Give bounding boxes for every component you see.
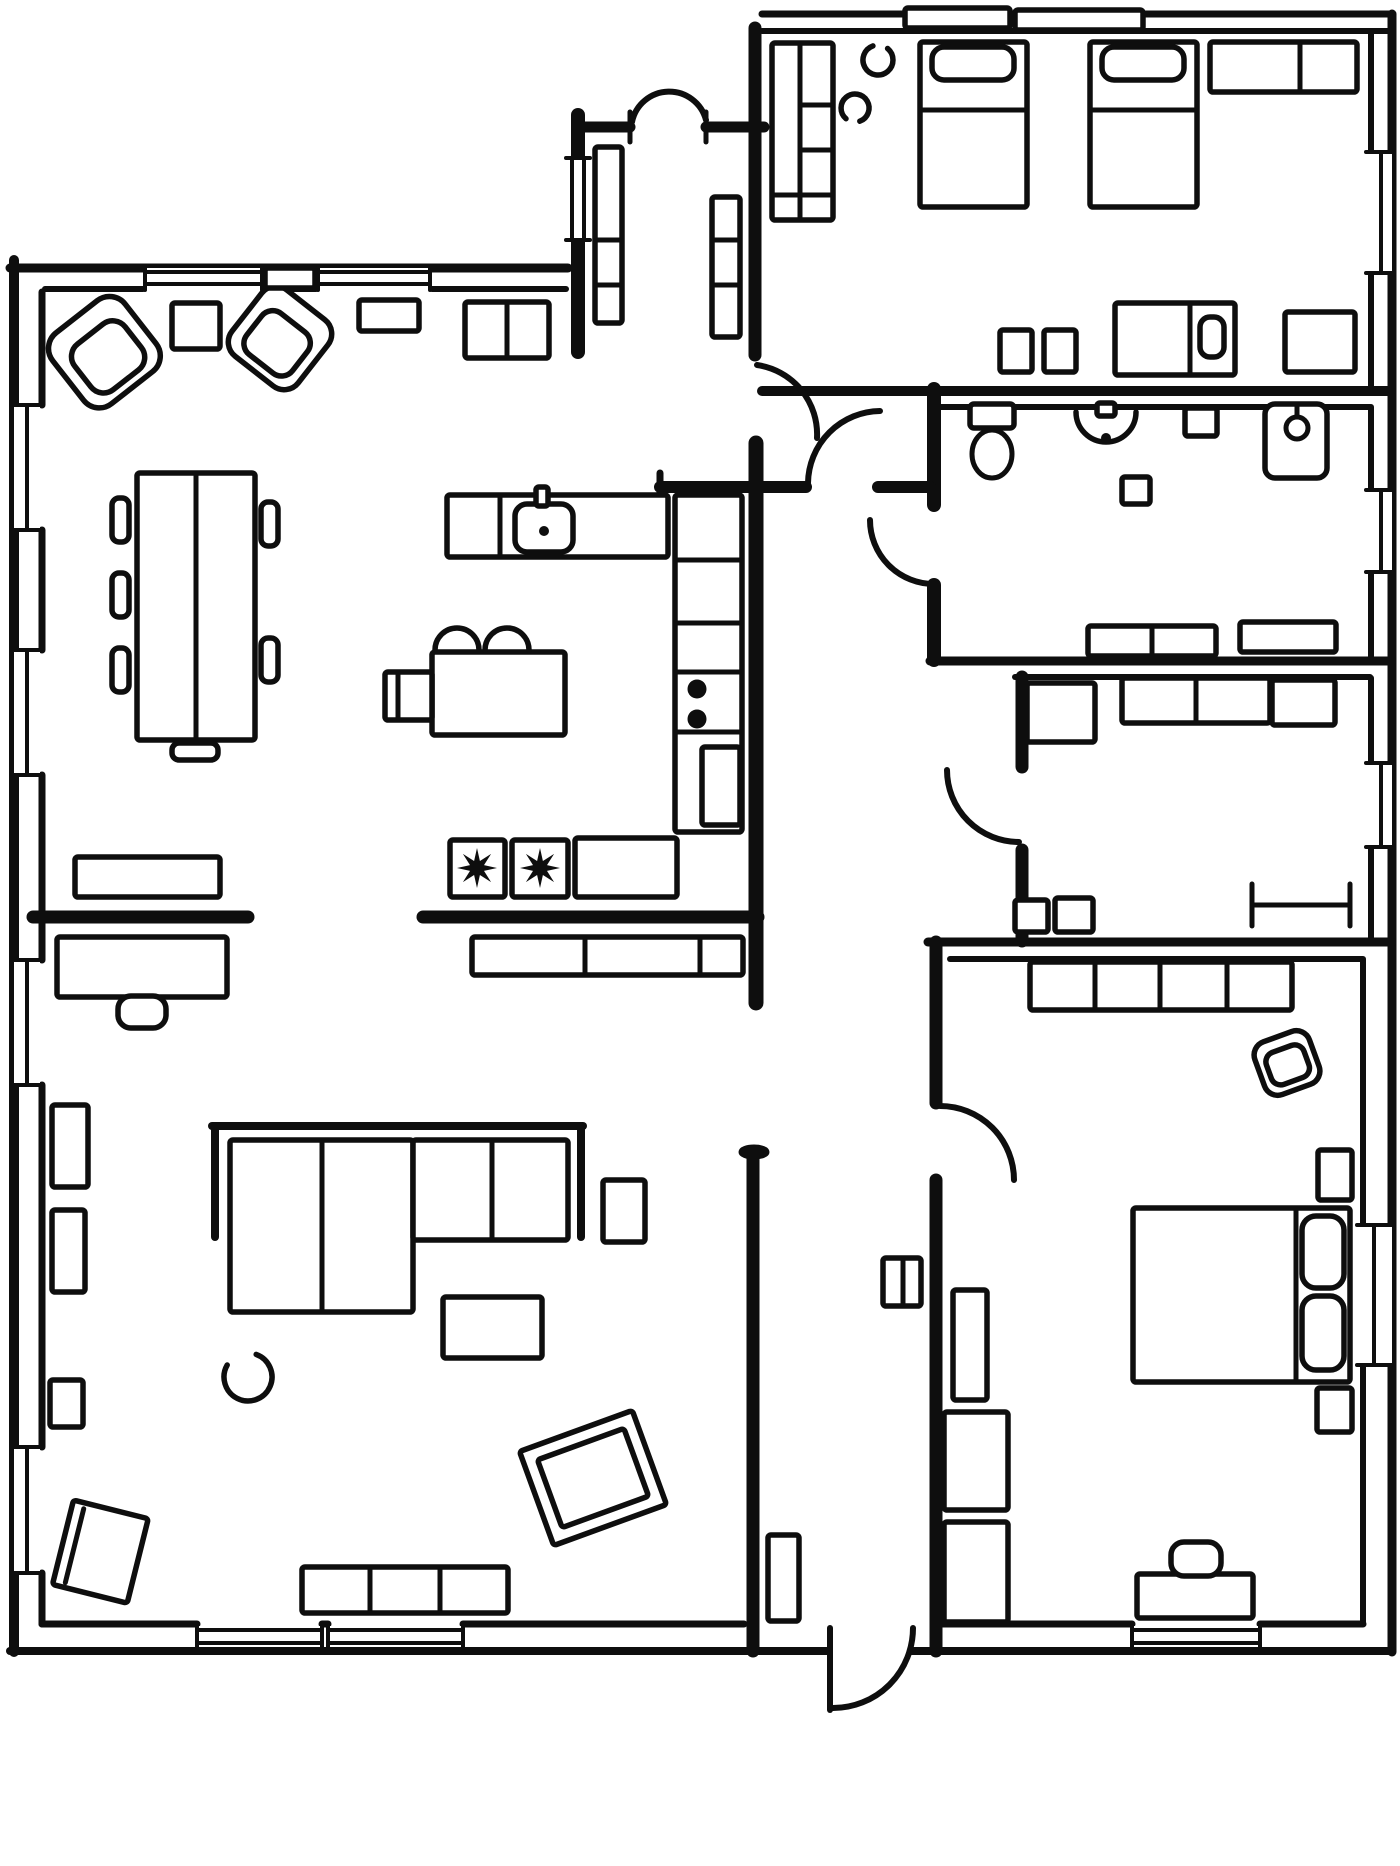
bedroom2-stool-1	[1000, 330, 1032, 372]
office-cabinet-2	[1272, 680, 1335, 725]
office-stool-2	[1055, 898, 1093, 932]
bedroom2-stool-2	[1044, 330, 1076, 372]
bedroom1-wardrobe-3	[944, 1522, 1008, 1622]
bedroom2-bed-2	[1102, 47, 1184, 80]
dining-table	[137, 473, 255, 740]
bedroom2-stool-2	[1044, 330, 1076, 372]
kitchen-island-stool	[385, 672, 432, 720]
radiator-3	[50, 1380, 83, 1427]
dining-chair-2	[112, 573, 129, 617]
kitchen-island	[432, 652, 565, 735]
bedroom2-bed-1	[920, 42, 1027, 207]
radiator-1	[52, 1105, 88, 1187]
dining-chair-6	[172, 743, 218, 760]
bedroom1-closet	[1030, 962, 1292, 1010]
desk-chair	[118, 996, 166, 1028]
bedroom2-stool-1	[1000, 330, 1032, 372]
radiator-3	[50, 1380, 83, 1427]
hall-wardrobe	[595, 147, 622, 323]
hall-bench	[712, 197, 740, 337]
bedroom1-armchair	[1250, 1027, 1324, 1099]
living-console	[359, 300, 419, 331]
bedroom1-bed	[1302, 1296, 1344, 1370]
kitchen-counter-end	[575, 838, 677, 897]
bedroom1-bed	[1133, 1208, 1350, 1382]
kitchen-oven-1-burner-icon	[457, 848, 497, 888]
bedroom1-nightstand-2	[1317, 1388, 1352, 1432]
office-stool-1	[1015, 900, 1048, 932]
bedroom2-pouf-1	[863, 46, 893, 75]
kitchen-island	[432, 628, 565, 735]
kitchen-tall-counter	[688, 680, 707, 699]
office-cabinet-1	[1027, 683, 1095, 742]
wall-pier	[265, 268, 315, 288]
living-side-table-1	[172, 303, 220, 349]
bath-bench-2	[1240, 622, 1336, 652]
bedroom1-nightstand-1	[1318, 1150, 1352, 1200]
living-double-table	[465, 302, 549, 358]
bedroom2-side-table	[1285, 312, 1355, 372]
hall-south-door-swing-icon	[757, 365, 817, 438]
entry-shoe-cabinet	[768, 1535, 799, 1621]
tv-console	[302, 1567, 508, 1613]
dining-chair-5	[261, 638, 278, 682]
bedroom2-pouf-1	[863, 46, 893, 75]
office-door-swing-icon	[947, 770, 1019, 842]
bedroom2-nightstand	[1200, 317, 1224, 357]
living-armchair-2	[221, 279, 339, 397]
bedroom1-wardrobe-1	[953, 1290, 987, 1400]
living-side-table-1	[172, 303, 220, 349]
desk	[57, 937, 227, 997]
office-stool-1	[1015, 900, 1048, 932]
entry-door-swing-icon	[833, 1628, 913, 1708]
bedroom2-bed-1	[932, 47, 1014, 80]
sofa-side-table	[603, 1180, 645, 1242]
radiator-2	[52, 1210, 85, 1292]
hall-wardrobe	[595, 147, 622, 323]
bedroom1-wardrobe-3	[944, 1522, 1008, 1622]
bath-wall-cabinet	[1185, 408, 1217, 436]
coffee-table	[443, 1297, 542, 1358]
wall-end-cap	[741, 1147, 767, 1157]
sofa-side-table	[603, 1180, 645, 1242]
dining-chair-4	[261, 502, 278, 546]
floorplan-svg	[0, 0, 1400, 1866]
kitchen-oven-2-burner-icon	[520, 848, 560, 888]
office-sideboard	[1122, 678, 1270, 723]
bath-toilet	[970, 404, 1014, 478]
bathroom-door-swing-icon	[870, 520, 934, 584]
bedroom2-wardrobe	[772, 43, 833, 220]
bedroom-door-swing-icon	[940, 1106, 1014, 1180]
coffee-table	[443, 1297, 542, 1358]
bedroom2-dresser	[1210, 42, 1357, 92]
living-console	[359, 300, 419, 331]
bedroom1-nightstand-2	[1317, 1388, 1352, 1432]
kitchen-island	[485, 628, 529, 650]
living-armchair-1	[40, 288, 168, 416]
tv-console	[302, 1567, 508, 1613]
kitchen-sink-counter	[539, 526, 549, 536]
bedroom2-pouf-2	[841, 94, 869, 121]
bath-wall-cabinet	[1185, 408, 1217, 436]
dining-chair-3	[112, 648, 129, 692]
wall-pier	[265, 268, 315, 288]
dining-chair-3	[112, 648, 129, 692]
bath-sink	[1097, 403, 1115, 416]
kitchen-island-stool	[385, 672, 432, 720]
wall-cabinet-1	[905, 8, 1010, 28]
dining-chair-6	[172, 743, 218, 760]
bedroom1-wardrobe-2	[944, 1412, 1008, 1510]
office-bench	[1252, 884, 1350, 926]
living-sideboard	[472, 937, 743, 975]
dining-chair-4	[261, 502, 278, 546]
bedroom1-desk	[1137, 1574, 1253, 1618]
bedroom1-wardrobe-1	[953, 1290, 987, 1400]
bedroom2-pouf-2	[841, 94, 869, 121]
sofa	[212, 1126, 583, 1312]
kitchen-counter-end	[575, 838, 677, 897]
kitchen-sink-counter	[447, 487, 668, 557]
desk	[57, 937, 227, 997]
corridor-cabinet	[883, 1258, 921, 1306]
desk-console	[75, 857, 220, 897]
rug-small	[52, 1500, 148, 1603]
dining-chair-2	[112, 573, 129, 617]
bedroom1-nightstand-1	[1318, 1150, 1352, 1200]
floor-pouf	[224, 1354, 272, 1401]
front-door-swing-icon	[632, 92, 706, 122]
rug-large	[520, 1410, 667, 1545]
dining-chair-1	[112, 498, 129, 542]
bedroom2-bed-2	[1090, 42, 1197, 207]
kitchen-tall-counter	[702, 747, 740, 825]
kitchen-sink-counter	[536, 487, 548, 506]
rug-small	[52, 1500, 148, 1603]
kitchen-oven-1	[450, 840, 505, 897]
entry-shoe-cabinet	[768, 1535, 799, 1621]
floorplan-page	[0, 0, 1400, 1866]
bedroom2-dresser	[1210, 42, 1357, 92]
office-cabinet-2	[1272, 680, 1335, 725]
wall-cabinet-2	[1015, 10, 1143, 30]
radiator-2	[52, 1210, 85, 1292]
bath-floor-box	[1122, 477, 1150, 504]
floor-pouf	[224, 1354, 272, 1401]
wall-cabinet-2	[1015, 10, 1143, 30]
bedroom1-wardrobe-2	[944, 1412, 1008, 1510]
bedroom1-desk-chair	[1171, 1542, 1221, 1576]
bath-bench-1	[1088, 626, 1216, 656]
bath-toilet	[972, 430, 1012, 478]
bath-sink	[1101, 433, 1111, 443]
bath-bench-2	[1240, 622, 1336, 652]
kitchen-tall-counter	[675, 495, 742, 832]
wall-cabinet-1	[905, 8, 1010, 28]
dining-chair-5	[261, 638, 278, 682]
kitchen-oven-2	[512, 840, 568, 897]
dining-chair-1	[112, 498, 129, 542]
bath-shower	[1265, 404, 1327, 478]
wall-end-cap	[741, 1147, 767, 1157]
bedroom2-nightstand	[1115, 303, 1235, 375]
bedroom1-desk	[1137, 1574, 1253, 1618]
bedroom1-bed	[1302, 1216, 1344, 1288]
bedroom1-desk-chair	[1171, 1542, 1221, 1576]
desk-console	[75, 857, 220, 897]
office-stool-2	[1055, 898, 1093, 932]
kitchen-tall-counter	[688, 710, 707, 729]
kitchen-island	[435, 628, 479, 650]
hall-bench	[712, 197, 740, 337]
radiator-1	[52, 1105, 88, 1187]
bath-floor-box	[1122, 477, 1150, 504]
office-cabinet-1	[1027, 683, 1095, 742]
desk-chair	[118, 996, 166, 1028]
bedroom2-side-table	[1285, 312, 1355, 372]
bath-toilet	[970, 404, 1014, 428]
